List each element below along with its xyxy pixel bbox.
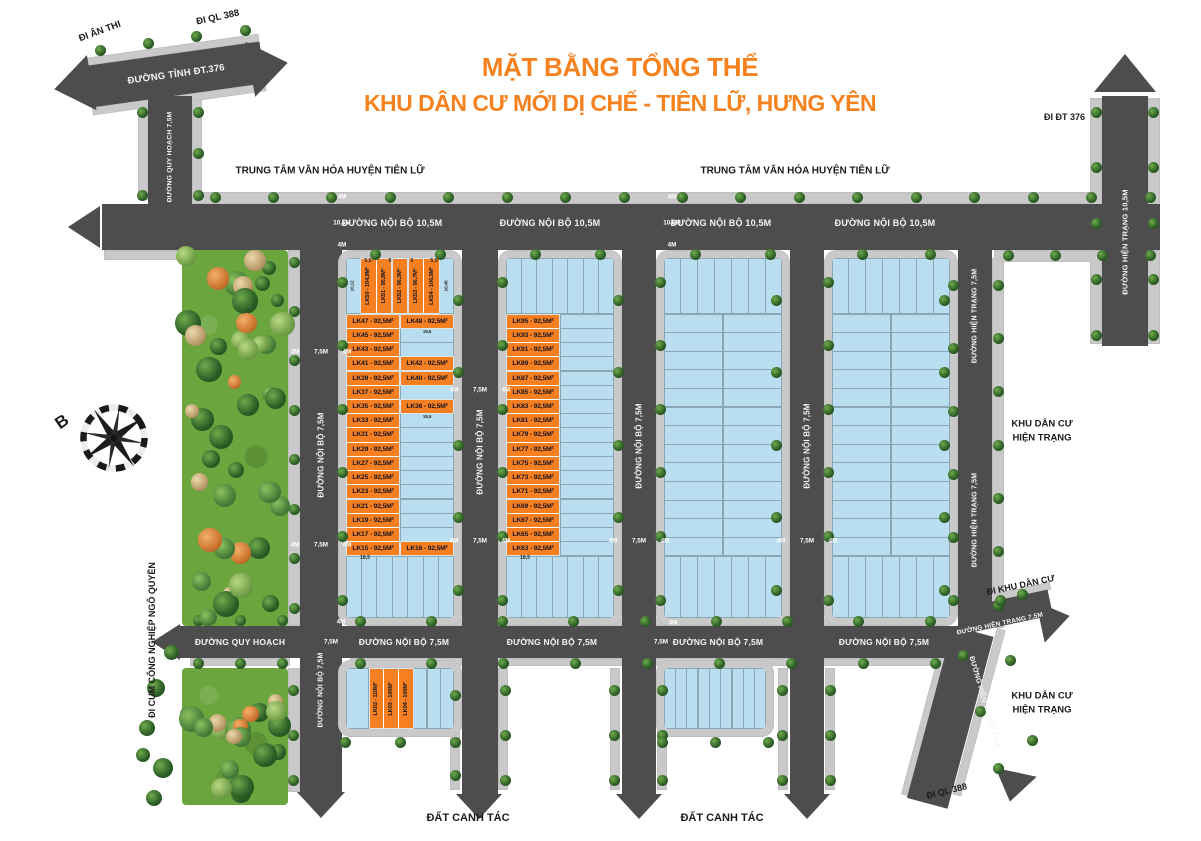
road-label-internal75-b2: ĐƯỜNG NỘI BỘ 7,5M <box>507 637 597 647</box>
lot-cell <box>537 259 551 314</box>
dim-label: 5,5 <box>430 258 437 264</box>
lot-cell <box>892 463 950 480</box>
tree-icon <box>210 338 227 355</box>
lot-row <box>664 351 782 370</box>
tree-icon <box>191 31 202 42</box>
block-e-lots: LK02 - 110M²LK03 - 100M²LK04 - 100M² <box>346 668 454 729</box>
dim-label: 7,5M <box>800 538 814 545</box>
lot-row: LK79 - 92,5M² <box>506 428 614 442</box>
block-b-top-strip <box>506 258 614 314</box>
dim-label: 4M <box>502 387 511 394</box>
tree-icon <box>443 192 454 203</box>
lot-cell <box>917 557 933 618</box>
lot-cell <box>849 259 865 314</box>
lot-cell: LK77 - 92,5M² <box>507 443 560 456</box>
road-internal-3 <box>622 250 656 795</box>
dim-label: 4M <box>502 538 511 545</box>
tree-icon <box>229 573 253 597</box>
tree-icon <box>497 467 508 478</box>
lot-cell <box>833 445 891 462</box>
lot-cell <box>561 343 614 356</box>
tree-icon <box>199 609 217 627</box>
lot-cell <box>665 445 723 462</box>
tree-icon <box>595 249 606 260</box>
lot-cell <box>414 669 426 729</box>
tree-icon <box>289 603 300 614</box>
lot-cell <box>347 669 369 729</box>
sidewalk-south-left <box>104 250 184 260</box>
lot-cell: LK42 - 92,5M² <box>401 357 454 370</box>
lot-cell <box>393 557 407 618</box>
lot-cell <box>665 352 723 369</box>
lot-cell <box>900 259 916 314</box>
lot-cell <box>833 538 891 555</box>
lot-row <box>664 314 782 333</box>
block-e-strip: LK02 - 110M²LK03 - 100M²LK04 - 100M² <box>346 668 454 729</box>
tree-icon <box>426 616 437 627</box>
tree-icon <box>355 616 366 627</box>
lot-cell <box>401 500 454 513</box>
dim-label: 4M <box>450 538 459 545</box>
lot-cell: LK02 - 110M² <box>370 669 384 729</box>
lot-row: LK83 - 92,5M² <box>506 399 614 413</box>
lot-cell <box>665 426 723 443</box>
tree-icon <box>655 340 666 351</box>
tree-icon <box>1091 274 1102 285</box>
road-label-internal105-4: ĐƯỜNG NỘI BỘ 10,5M <box>835 218 936 228</box>
tree-icon <box>613 585 624 596</box>
lot-row: LK43 - 92,5M² <box>346 342 454 356</box>
lot-cell: LK47 - 92,5M² <box>347 315 400 328</box>
lot-cell <box>568 557 582 618</box>
lot-cell <box>724 315 782 332</box>
lot-row <box>664 370 782 389</box>
lot-cell: LK33 - 92,5M² <box>347 414 400 427</box>
lot-row: LK75 - 92,5M² <box>506 456 614 470</box>
dim-label: 4M <box>338 242 347 249</box>
block-a-lots: 10,12LK50 - 104,9M²LK51 - 95,8M²LK52 - 9… <box>346 258 454 618</box>
tree-icon <box>763 737 774 748</box>
tree-icon <box>925 249 936 260</box>
lot-cell: LK65 - 92,5M² <box>507 528 560 541</box>
lot-cell: LK19 - 92,5M² <box>347 514 400 527</box>
block-f-strip <box>664 668 766 729</box>
block-bottom-strip <box>832 556 950 618</box>
lot-cell <box>401 471 454 484</box>
tree-icon <box>453 440 464 451</box>
block-f-lots <box>664 668 766 729</box>
lot-cell: LK17 - 92,5M² <box>347 528 400 541</box>
tree-icon <box>453 295 464 306</box>
lot-cell <box>749 259 765 314</box>
arrow-main-west-icon <box>68 206 100 248</box>
tree-icon <box>289 553 300 564</box>
lot-row: LK35 - 92,5M²LK36 - 92,5M² <box>346 399 454 413</box>
dim-label: 4M <box>450 387 459 394</box>
tree-icon <box>450 737 461 748</box>
lot-cell <box>833 463 891 480</box>
lot-cell <box>892 315 950 332</box>
road-label-existing105: ĐƯỜNG HIỆN TRẠNG 10,5M <box>1121 189 1130 294</box>
lot-cell <box>833 426 891 443</box>
road-internal-2 <box>462 250 498 795</box>
existing-area-label-1b: HIỆN TRẠNG <box>1012 433 1071 444</box>
tree-icon <box>240 25 251 36</box>
tree-icon <box>262 595 279 612</box>
lot-row <box>664 444 782 463</box>
tree-icon <box>355 658 366 669</box>
lot-cell <box>724 352 782 369</box>
tree-icon <box>207 267 230 290</box>
tree-icon <box>228 375 242 389</box>
lot-cell: LK29 - 92,5M² <box>347 443 400 456</box>
tree-icon <box>265 388 286 409</box>
lot-cell <box>522 557 536 618</box>
lot-cell <box>755 669 765 729</box>
tree-icon <box>925 616 936 627</box>
lot-cell <box>561 528 614 541</box>
lot-row <box>664 388 782 407</box>
tree-icon <box>771 295 782 306</box>
lot-cell <box>665 501 723 518</box>
tree-icon <box>655 467 666 478</box>
tree-icon <box>502 192 513 203</box>
dim-label: 7,5M <box>324 639 338 646</box>
tree-icon <box>560 192 571 203</box>
tree-icon <box>619 192 630 203</box>
lot-row: LK21 - 92,5M² <box>346 499 454 513</box>
dim-label: 7,5M <box>314 542 328 549</box>
lot-cell <box>401 528 454 541</box>
arrow-road1-south-icon <box>297 792 345 818</box>
tree-icon <box>1027 735 1038 746</box>
lot-row <box>832 388 950 407</box>
tree-icon <box>95 45 106 56</box>
lot-cell <box>568 259 582 314</box>
lot-cell <box>699 669 709 729</box>
tree-icon <box>209 425 233 449</box>
tree-icon <box>326 192 337 203</box>
lot-cell <box>537 557 551 618</box>
lot-label: LK03 - 100M² <box>388 682 394 715</box>
lot-cell: LK50 - 104,9M² <box>361 259 376 314</box>
tree-icon <box>1148 274 1159 285</box>
lot-label: LK02 - 110M² <box>373 682 379 715</box>
tree-icon <box>823 404 834 415</box>
lot-cell: LK31 - 92,5M² <box>347 428 400 441</box>
lot-row <box>832 370 950 389</box>
lot-cell <box>733 669 743 729</box>
tree-icon <box>613 512 624 523</box>
tree-icon <box>220 760 239 779</box>
tree-icon <box>337 404 348 415</box>
lot-cell <box>561 542 614 555</box>
lot-cell <box>892 352 950 369</box>
tree-icon <box>858 658 869 669</box>
dim-label: 7,5M <box>314 349 328 356</box>
lot-row <box>832 351 950 370</box>
lot-cell <box>883 557 899 618</box>
tree-icon <box>193 107 204 118</box>
lot-cell <box>424 557 438 618</box>
tree-icon <box>1091 218 1102 229</box>
tree-icon <box>497 616 508 627</box>
tree-icon <box>823 340 834 351</box>
lot-row: LK69 - 92,5M² <box>506 499 614 513</box>
lot-cell <box>665 315 723 332</box>
lot-cell: LK04 - 100M² <box>399 669 413 729</box>
lot-label: LK53 - 96,7M² <box>413 269 419 304</box>
lot-cell <box>584 259 598 314</box>
cultural-center-label-2: TRUNG TÂM VĂN HÓA HUYỆN TIÊN LỮ <box>700 166 889 177</box>
lot-row: LK77 - 92,5M² <box>506 442 614 456</box>
lot-cell <box>561 443 614 456</box>
lot-cell <box>724 463 782 480</box>
dim-label: 4M <box>343 349 352 356</box>
tree-icon <box>613 440 624 451</box>
tree-icon <box>137 107 148 118</box>
tree-icon <box>193 148 204 159</box>
lot-cell: LK37 - 92,5M² <box>347 386 400 399</box>
tree-icon <box>1028 192 1039 203</box>
lot-row: LK19 - 92,5M² <box>346 513 454 527</box>
lot-cell: LK81 - 92,5M² <box>507 414 560 427</box>
tree-icon <box>497 340 508 351</box>
lot-cell <box>561 372 614 385</box>
tree-icon <box>193 190 204 201</box>
lot-cell: LK95 - 92,5M² <box>507 315 560 328</box>
lot-row <box>832 537 950 556</box>
road-label-quyhoach75: ĐƯỜNG QUY HOẠCH 7,5M <box>167 112 174 203</box>
lot-row <box>664 500 782 519</box>
lot-cell <box>833 259 849 314</box>
tree-icon <box>948 406 959 417</box>
dim-label: 5,5 <box>364 258 371 264</box>
page-title-line2: KHU DÂN CƯ MỚI DỊ CHẾ - TIÊN LỮ, HƯNG YÊ… <box>340 90 900 117</box>
lot-cell: LK85 - 92,5M² <box>507 386 560 399</box>
dim-label: 4M <box>668 194 677 201</box>
lot-cell: LK63 - 92,5M² <box>507 542 560 555</box>
lot-cell <box>377 557 391 618</box>
tree-icon <box>136 748 150 762</box>
lot-label: LK54 - 106,9M² <box>429 267 435 305</box>
lot-row: LK73 - 92,5M² <box>506 471 614 485</box>
dim-label: 4M <box>343 542 352 549</box>
tree-icon <box>1091 107 1102 118</box>
dim-label: 7,5M <box>654 639 668 646</box>
lot-cell <box>715 557 731 618</box>
tree-icon <box>500 730 511 741</box>
tree-icon <box>426 658 437 669</box>
lot-row: LK65 - 92,5M² <box>506 528 614 542</box>
lot-cell: LK71 - 92,5M² <box>507 485 560 498</box>
lot-cell: LK53 - 96,7M² <box>409 259 424 314</box>
lot-row <box>832 426 950 445</box>
tree-icon <box>655 595 666 606</box>
road-label-internal75-v5: ĐƯỜNG NỘI BỘ 7,5M <box>318 652 325 727</box>
block-top-strip <box>832 258 950 314</box>
direction-ql388-top: ĐI QL 388 <box>195 8 240 28</box>
road-existing-105-upper <box>1102 96 1148 204</box>
block-a-top-strip: 10,12LK50 - 104,9M²LK51 - 95,8M²LK52 - 9… <box>346 258 454 314</box>
lot-cell <box>561 386 614 399</box>
lot-row <box>832 314 950 333</box>
existing-area-label-2a: KHU DÂN CƯ <box>1011 691 1072 702</box>
dim-label: 18,5 <box>520 555 530 561</box>
lot-cell: LK91 - 92,5M² <box>507 343 560 356</box>
lot-cell <box>892 408 950 425</box>
lot-cell: LK75 - 92,5M² <box>507 457 560 470</box>
tree-icon <box>1097 250 1108 261</box>
lot-cell <box>883 259 899 314</box>
tree-icon <box>609 685 620 696</box>
lot-cell <box>665 333 723 350</box>
dim-label: 7,5M <box>473 538 487 545</box>
road-label-internal75-b3: ĐƯỜNG NỘI BỘ 7,5M <box>673 637 763 647</box>
lot-cell <box>833 315 891 332</box>
tree-icon <box>825 775 836 786</box>
dim-label: 4M <box>669 620 678 627</box>
tree-icon <box>711 616 722 627</box>
road-label-internal105-3: ĐƯỜNG NỘI BỘ 10,5M <box>671 218 772 228</box>
dim-label: 18,5 <box>360 555 370 561</box>
tree-icon <box>825 730 836 741</box>
lot-cell <box>721 669 731 729</box>
tree-icon <box>238 339 259 360</box>
tree-icon <box>771 512 782 523</box>
lot-cell <box>561 485 614 498</box>
farmland-label-2: ĐẤT CANH TÁC <box>680 812 763 824</box>
tree-icon <box>657 737 668 748</box>
tree-icon <box>530 249 541 260</box>
tree-icon <box>714 658 725 669</box>
lot-row: LK17 - 92,5M² <box>346 528 454 542</box>
lot-cell: LK69 - 92,5M² <box>507 500 560 513</box>
tree-icon <box>777 730 788 741</box>
dim-label: 4M <box>291 542 300 549</box>
tree-icon <box>139 720 155 736</box>
page-title: MẶT BẰNG TỔNG THỂ KHU DÂN CƯ MỚI DỊ CHẾ … <box>340 52 900 117</box>
lot-cell: 18,5 <box>401 414 454 427</box>
lot-row: LK85 - 92,5M² <box>506 385 614 399</box>
road-label-internal105-2: ĐƯỜNG NỘI BỘ 10,5M <box>500 218 601 228</box>
lot-row <box>832 481 950 500</box>
dim-label: 5 <box>411 258 414 264</box>
tree-icon <box>453 585 464 596</box>
tree-icon <box>198 528 222 552</box>
lot-cell <box>724 333 782 350</box>
tree-icon <box>823 277 834 288</box>
dim-label: 4M <box>337 619 346 626</box>
tree-icon <box>289 454 300 465</box>
lot-cell: LK35 - 92,5M² <box>347 400 400 413</box>
tree-icon <box>782 616 793 627</box>
direction-dt376: ĐI ĐT 376 <box>1044 112 1085 122</box>
lot-row: LK45 - 92,5M²18,5 <box>346 328 454 342</box>
dim-label: 10,12 <box>351 280 356 291</box>
lot-cell: 10,12 <box>347 259 360 314</box>
block-bottom-strip <box>664 556 782 618</box>
tree-icon <box>337 595 348 606</box>
block-a-bottom-strip <box>346 556 454 618</box>
lot-cell <box>362 557 376 618</box>
lot-row: LK89 - 92,5M² <box>506 357 614 371</box>
lot-cell <box>833 519 891 536</box>
tree-icon <box>193 658 204 669</box>
lot-label: LK04 - 100M² <box>403 682 409 715</box>
block-c-lots <box>664 258 782 618</box>
lot-row: LK39 - 92,5M²LK40 - 92,5M² <box>346 371 454 385</box>
tree-icon <box>253 743 277 767</box>
lot-cell: LK36 - 92,5M² <box>401 400 454 413</box>
tree-icon <box>677 192 688 203</box>
road-label-quyhoach: ĐƯỜNG QUY HOẠCH <box>195 637 285 647</box>
lot-cell <box>681 557 697 618</box>
lot-cell: 10,48 <box>440 259 453 314</box>
tree-icon <box>825 685 836 696</box>
direction-an-thi: ĐI ÂN THI <box>77 19 122 44</box>
lot-cell: LK39 - 92,5M² <box>347 372 400 385</box>
lot-cell <box>561 471 614 484</box>
lot-cell <box>401 514 454 527</box>
dim-label: 4M <box>338 194 347 201</box>
tree-icon <box>993 763 1004 774</box>
lot-cell <box>522 259 536 314</box>
tree-icon <box>993 493 1004 504</box>
arrow-road3-south-icon <box>616 794 662 819</box>
tree-icon <box>289 257 300 268</box>
lot-row <box>664 333 782 352</box>
lot-cell <box>561 514 614 527</box>
lot-cell <box>833 333 891 350</box>
lot-cell: LK93 - 92,5M² <box>507 329 560 342</box>
block-b-rows: LK95 - 92,5M²LK93 - 92,5M²LK91 - 92,5M²L… <box>506 314 614 556</box>
lot-cell <box>732 259 748 314</box>
lot-row <box>664 481 782 500</box>
lot-row: LK95 - 92,5M² <box>506 314 614 328</box>
lot-row: LK81 - 92,5M² <box>506 414 614 428</box>
lot-cell <box>599 259 613 314</box>
lot-cell <box>665 482 723 499</box>
dim-label: 4M <box>668 242 677 249</box>
tree-icon <box>786 658 797 669</box>
tree-icon <box>771 585 782 596</box>
block-c <box>656 250 790 626</box>
lot-row <box>664 463 782 482</box>
tree-icon <box>288 775 299 786</box>
road-label-existing75-v1: ĐƯỜNG HIỆN TRẠNG 7,5M <box>972 269 979 364</box>
tree-icon <box>288 685 299 696</box>
lot-cell <box>561 457 614 470</box>
tree-icon <box>710 737 721 748</box>
lot-cell <box>724 408 782 425</box>
lot-cell <box>665 370 723 387</box>
lot-cell: LK52 - 96,3M² <box>393 259 408 314</box>
tree-icon <box>235 615 246 626</box>
tree-icon <box>993 280 1004 291</box>
lot-cell <box>665 669 675 729</box>
lot-cell <box>833 408 891 425</box>
lot-cell: LK43 - 92,5M² <box>347 343 400 356</box>
lot-row <box>664 407 782 426</box>
lot-cell <box>553 259 567 314</box>
lot-cell: LK15 - 92,5M² <box>347 542 400 555</box>
tree-icon <box>1086 192 1097 203</box>
road-label-internal75-v4: ĐƯỜNG NỘI BỘ 7,5M <box>803 403 812 488</box>
tree-icon <box>450 770 461 781</box>
lot-row <box>664 426 782 445</box>
tree-icon <box>794 192 805 203</box>
